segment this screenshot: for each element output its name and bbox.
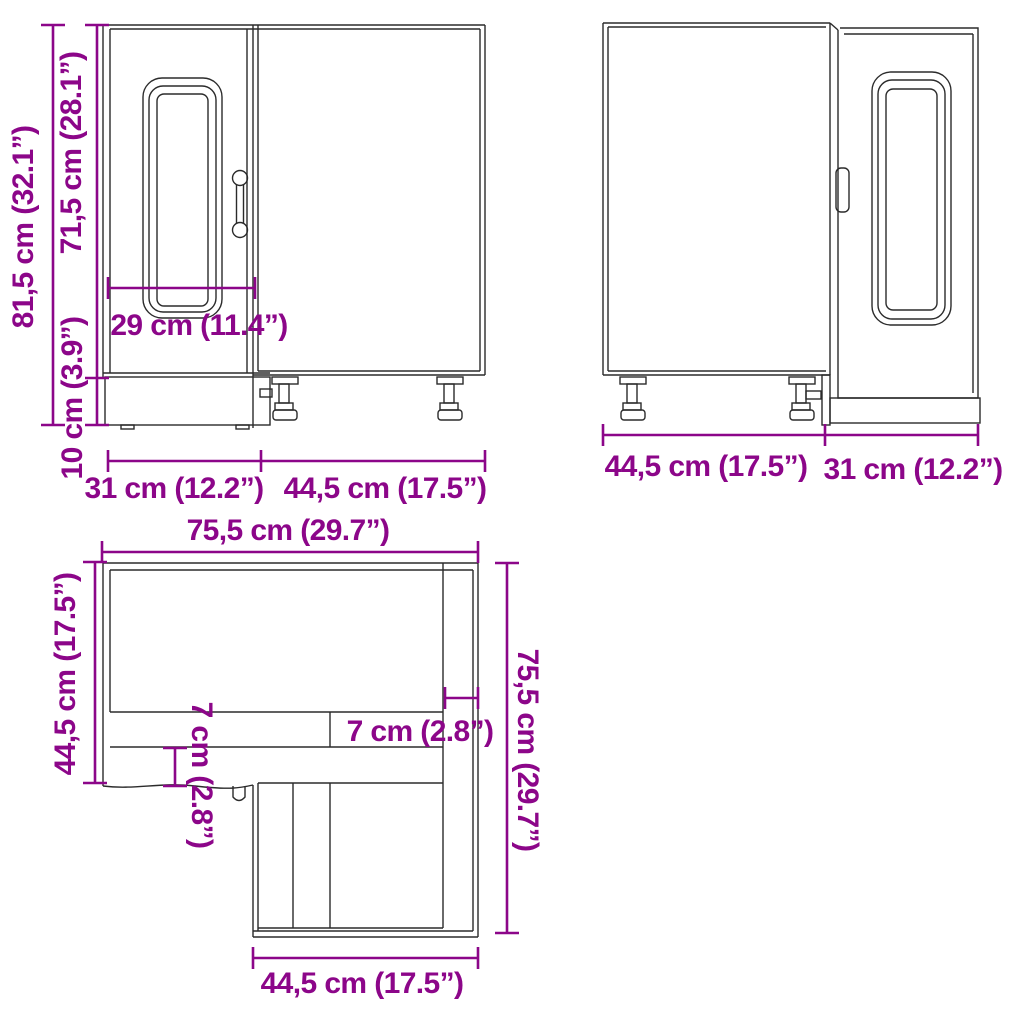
top-total-depth-label: 75,5 cm (29.7”)	[512, 649, 542, 852]
front-view-drawing	[103, 25, 485, 429]
top-side-depth-label: 44,5 cm (17.5”)	[51, 573, 81, 776]
front-width-right-label: 44,5 cm (17.5”)	[284, 474, 487, 504]
front-plinth-height-label: 10 cm (3.9”)	[58, 317, 88, 480]
back-view-dimension-lines	[603, 424, 978, 446]
top-view-dimension-lines	[83, 541, 519, 969]
product-dimension-diagram: 81,5 cm (32.1”) 71,5 cm (28.1”) 10 cm (3…	[0, 0, 1024, 1024]
top-overhang-left-label: 7 cm (2.8”)	[186, 702, 216, 849]
top-view-drawing	[103, 563, 478, 937]
front-total-height-label: 81,5 cm (32.1”)	[9, 126, 39, 329]
top-wing-width-label: 44,5 cm (17.5”)	[261, 969, 464, 999]
front-door-height-label: 71,5 cm (28.1”)	[57, 52, 87, 255]
back-width-left-label: 44,5 cm (17.5”)	[605, 452, 808, 482]
cabinet-technical-drawing	[0, 0, 1024, 1024]
back-view-drawing	[603, 23, 980, 425]
front-width-left-label: 31 cm (12.2”)	[85, 474, 264, 504]
top-overhang-right-label: 7 cm (2.8”)	[347, 717, 494, 747]
back-width-right-label: 31 cm (12.2”)	[824, 455, 1003, 485]
front-view-dimension-lines	[41, 25, 485, 472]
front-door-width-label: 29 cm (11.4”)	[110, 311, 287, 341]
top-total-width-label: 75,5 cm (29.7”)	[187, 516, 390, 546]
